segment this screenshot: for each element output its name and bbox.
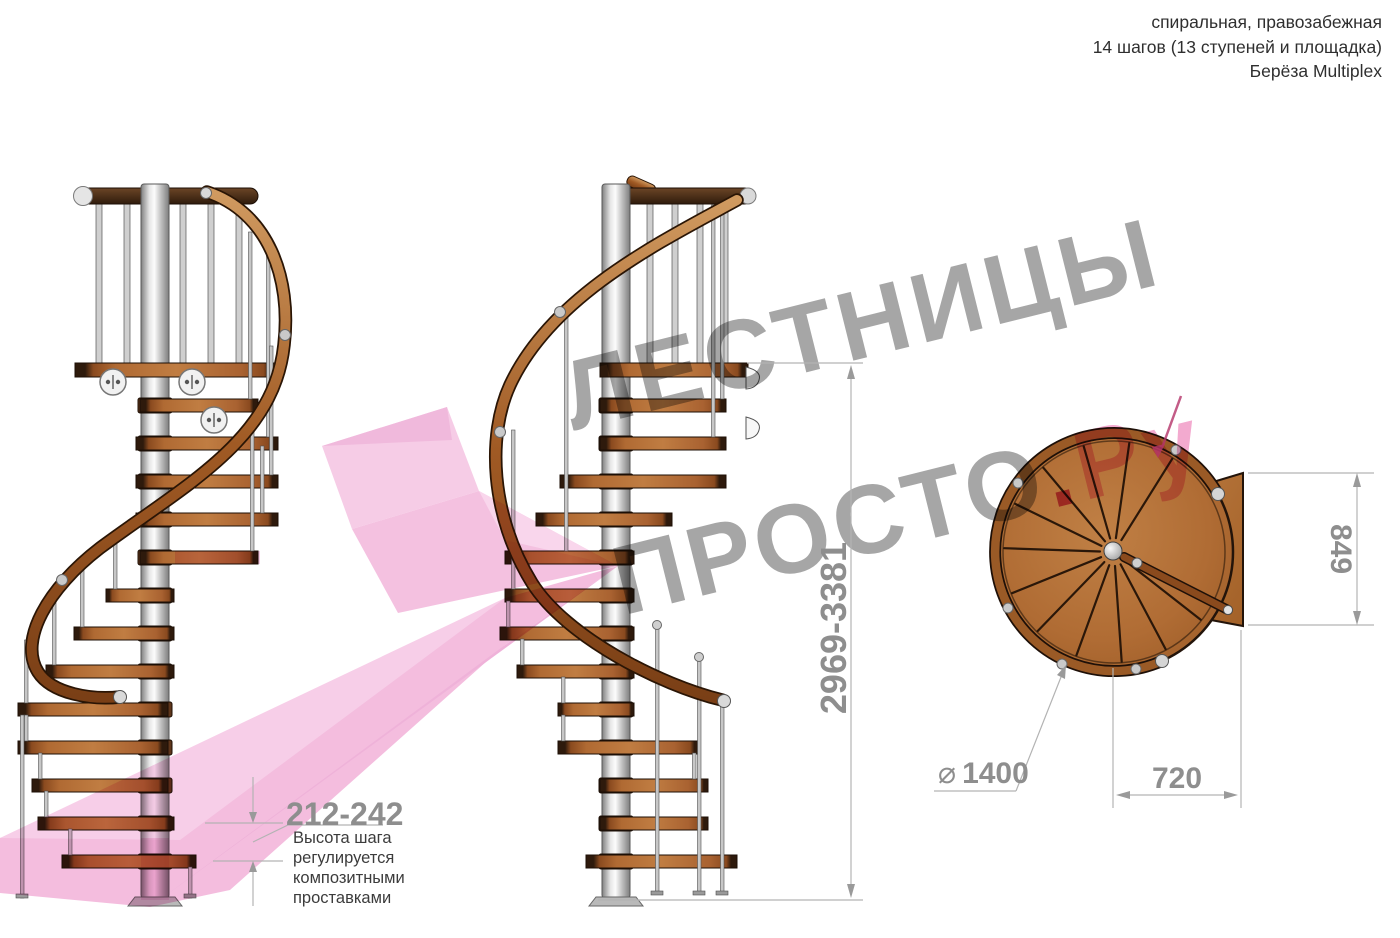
dimension-arrowheads: [249, 365, 1361, 898]
title-line-material: Берёза Multiplex: [1093, 59, 1382, 84]
note-line: регулируется: [293, 848, 405, 868]
rotation-arrow: [1152, 396, 1181, 458]
step-height-note: Высота шага регулируется композитными пр…: [293, 828, 405, 908]
diameter-symbol: ⌀: [938, 757, 956, 790]
total-height-dimension: 2969-3381: [813, 542, 855, 714]
diameter-dimension: ⌀1400: [938, 756, 1029, 791]
diameter-value: 1400: [962, 757, 1029, 790]
passage-width-dimension: 720: [1152, 762, 1202, 796]
dimension-lines: [0, 0, 1400, 938]
title-line-type: спиральная, правозабежная: [1093, 10, 1382, 35]
technical-drawing-page: { "header": { "line1": "спиральная, прав…: [0, 0, 1400, 938]
note-line: композитными: [293, 868, 405, 888]
note-line: проставками: [293, 888, 405, 908]
platform-side-dimension: 849: [1323, 524, 1357, 574]
note-line: Высота шага: [293, 828, 405, 848]
title-line-steps: 14 шагов (13 ступеней и площадка): [1093, 35, 1382, 60]
drawing-title-block: спиральная, правозабежная 14 шагов (13 с…: [1093, 10, 1382, 84]
